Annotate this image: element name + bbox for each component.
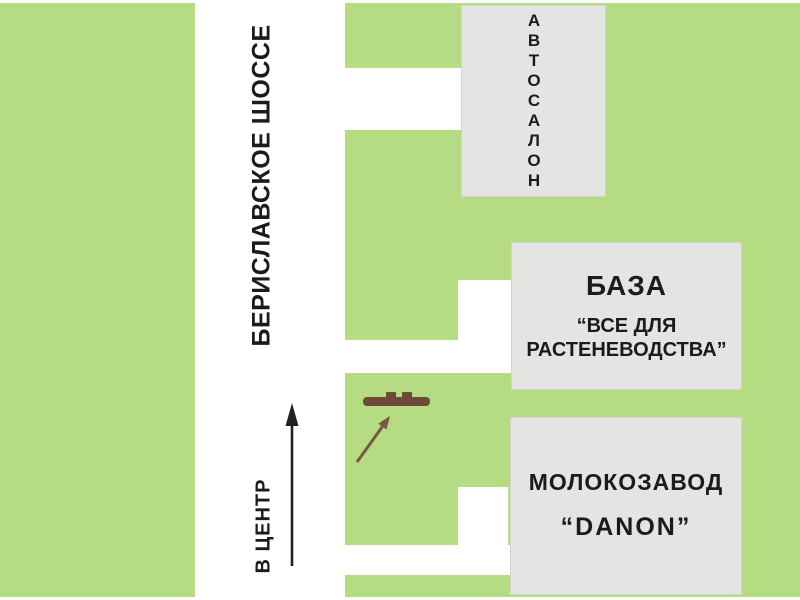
driveway-autosalon (345, 68, 461, 130)
road-name-label: БЕРИСЛАВСКОЕ ШОССЕ (248, 77, 277, 347)
direction-up-arrow-icon (281, 400, 303, 570)
location-marker (363, 397, 430, 406)
location-map: АВТОСАЛОН БАЗА “ВСЕ ДЛЯ РАСТЕНЕВОДСТВА” … (0, 0, 800, 600)
green-area-left (0, 3, 195, 597)
direction-to-center-label: В ЦЕНТР (253, 488, 276, 574)
building-baza-title: БАЗА (586, 270, 667, 302)
building-baza: БАЗА “ВСЕ ДЛЯ РАСТЕНЕВОДСТВА” (511, 242, 742, 390)
marker-notch (402, 392, 412, 398)
driveway-baza-horizontal (345, 340, 511, 373)
building-autosalon-label: АВТОСАЛОН (524, 11, 542, 191)
page-margin-top (0, 0, 800, 3)
driveway-dairy-horizontal (345, 545, 511, 575)
building-autosalon: АВТОСАЛОН (461, 5, 606, 197)
building-dairy-title: МОЛОКОЗАВОД (529, 469, 723, 496)
building-dairy-subtitle: “DANON” (516, 513, 736, 543)
marker-pointer-arrow-icon (350, 410, 398, 468)
marker-notch (386, 392, 396, 398)
building-baza-subtitle: “ВСЕ ДЛЯ РАСТЕНЕВОДСТВА” (517, 315, 737, 362)
building-dairy: МОЛОКОЗАВОД “DANON” (510, 417, 742, 595)
